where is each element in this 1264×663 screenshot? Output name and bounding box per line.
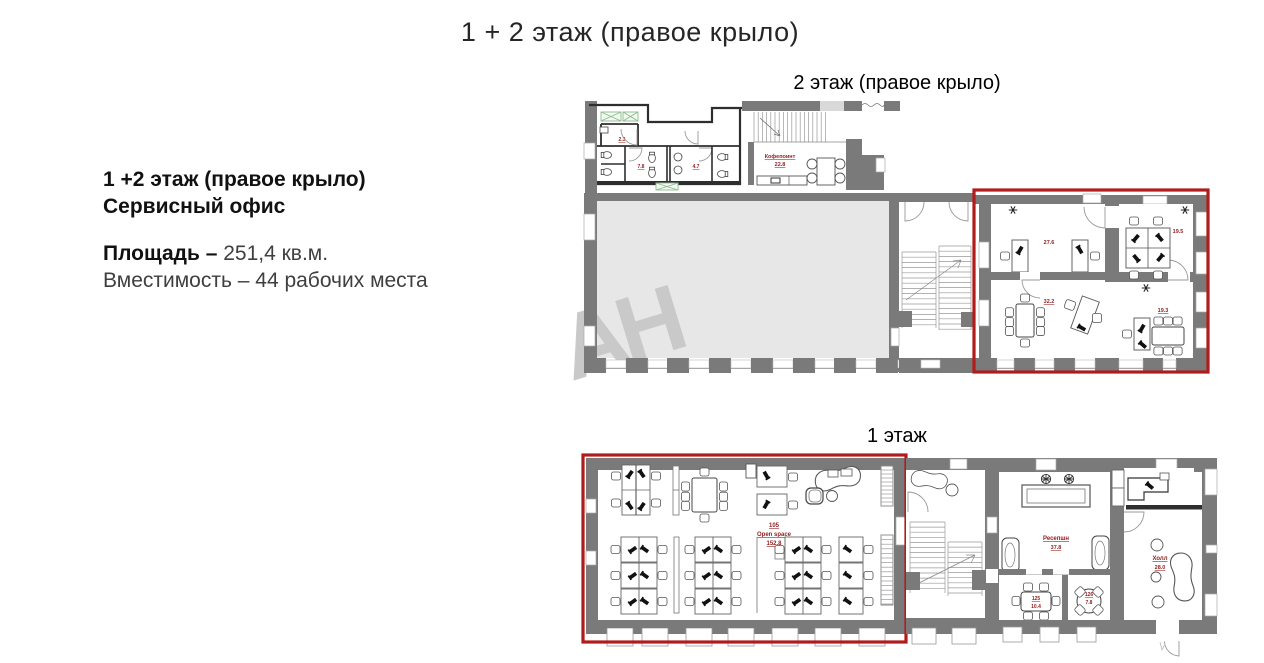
svg-text:19.5: 19.5	[1173, 229, 1184, 235]
svg-text:4.7: 4.7	[693, 164, 700, 170]
svg-text:22.8: 22.8	[775, 162, 786, 168]
svg-text:37.8: 37.8	[1051, 545, 1062, 551]
svg-text:19.3: 19.3	[1158, 308, 1169, 314]
svg-text:126: 126	[1085, 592, 1094, 598]
svg-text:Ресепшн: Ресепшн	[1043, 536, 1069, 542]
svg-text:27.6: 27.6	[1044, 240, 1055, 246]
svg-text:Кофепоинт: Кофепоинт	[765, 153, 796, 160]
svg-text:28.0: 28.0	[1155, 565, 1166, 571]
svg-text:Холл: Холл	[1152, 556, 1167, 562]
svg-text:7.8: 7.8	[1086, 600, 1093, 606]
svg-text:10.4: 10.4	[1031, 604, 1041, 610]
svg-text:2.3: 2.3	[619, 137, 626, 143]
svg-text:7.8: 7.8	[638, 164, 645, 170]
svg-text:105: 105	[769, 523, 780, 529]
svg-text:125: 125	[1032, 596, 1041, 602]
svg-text:32.2: 32.2	[1044, 299, 1055, 305]
